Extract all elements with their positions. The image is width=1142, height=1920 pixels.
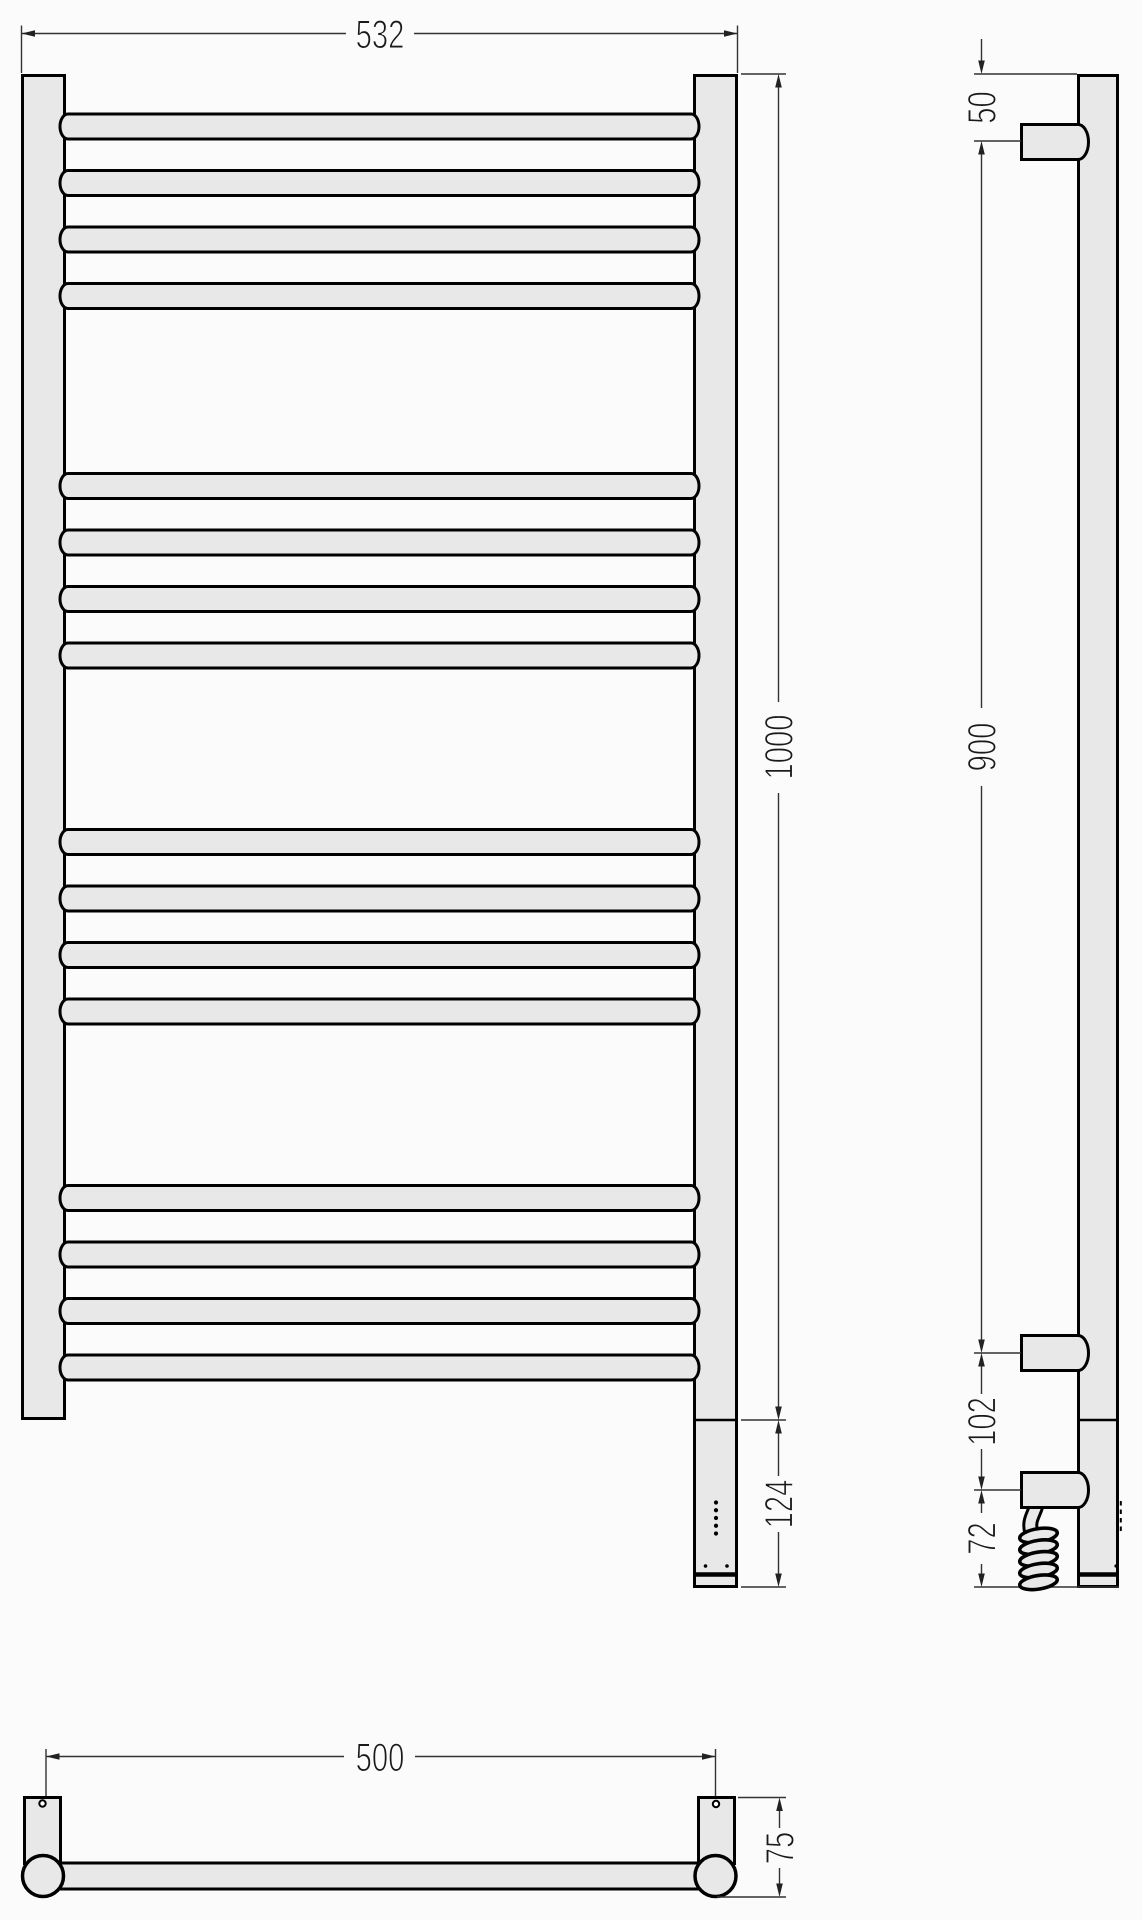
svg-text:75: 75 bbox=[758, 1832, 803, 1864]
svg-text:532: 532 bbox=[356, 13, 405, 58]
svg-text:72: 72 bbox=[960, 1522, 1005, 1554]
svg-text:124: 124 bbox=[757, 1480, 802, 1529]
svg-text:102: 102 bbox=[960, 1397, 1005, 1446]
svg-text:900: 900 bbox=[960, 723, 1005, 772]
svg-text:50: 50 bbox=[960, 91, 1005, 123]
svg-text:500: 500 bbox=[356, 1736, 405, 1781]
svg-text:1000: 1000 bbox=[757, 715, 802, 780]
